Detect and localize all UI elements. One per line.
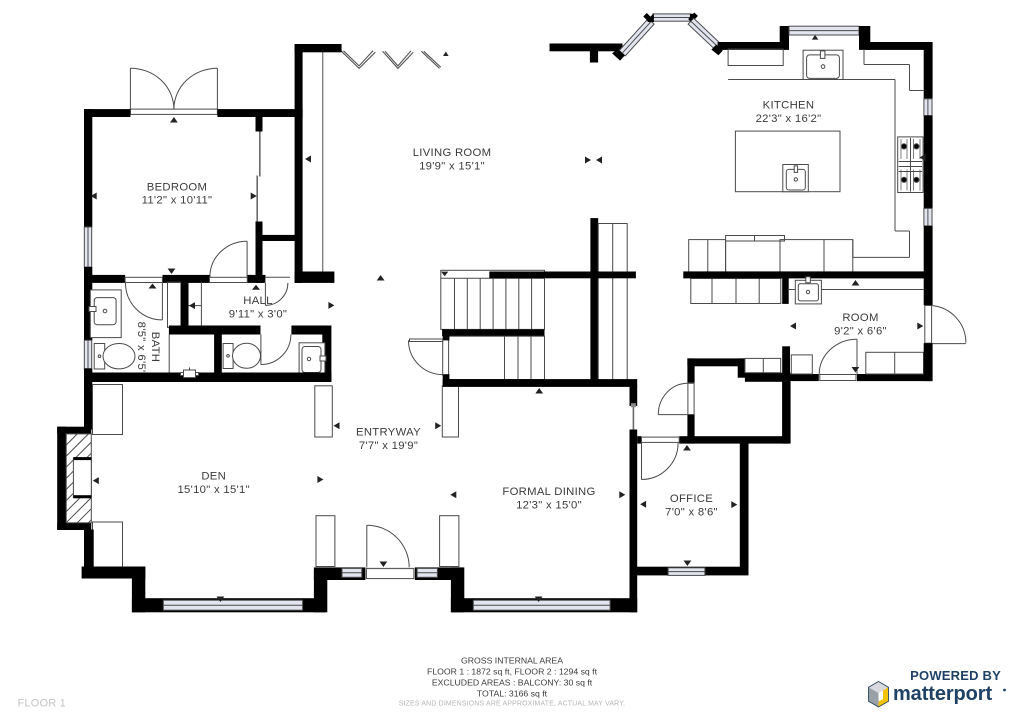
svg-text:9'11" x 3'0": 9'11" x 3'0" <box>229 309 287 321</box>
svg-text:7'0" x 8'6": 7'0" x 8'6" <box>665 506 718 518</box>
svg-text:19'9" x 15'1": 19'9" x 15'1" <box>419 160 485 172</box>
svg-text:OFFICE: OFFICE <box>670 493 713 505</box>
svg-text:SIZES AND DIMENSIONS ARE APPRO: SIZES AND DIMENSIONS ARE APPROXIMATE, AC… <box>399 701 626 708</box>
svg-text:15'10" x 15'1": 15'10" x 15'1" <box>177 484 249 496</box>
svg-text:7'7" x 19'9": 7'7" x 19'9" <box>359 440 418 452</box>
svg-text:TOTAL: 3166 sq ft: TOTAL: 3166 sq ft <box>477 688 548 698</box>
svg-text:22'3" x 16'2": 22'3" x 16'2" <box>756 113 822 125</box>
svg-text:DEN: DEN <box>201 471 226 483</box>
svg-text:ENTRYWAY: ENTRYWAY <box>356 427 421 439</box>
svg-text:KITCHEN: KITCHEN <box>763 100 815 112</box>
svg-text:FLOOR 1: FLOOR 1 <box>18 698 66 710</box>
svg-text:matterport: matterport <box>893 683 992 705</box>
svg-text:ROOM: ROOM <box>842 312 878 324</box>
svg-text:GROSS INTERNAL AREA: GROSS INTERNAL AREA <box>461 656 563 666</box>
svg-text:POWERED BY: POWERED BY <box>910 668 1001 683</box>
svg-text:EXCLUDED AREAS : BALCONY: 30 s: EXCLUDED AREAS : BALCONY: 30 sq ft <box>432 677 593 687</box>
svg-text:11'2" x 10'11": 11'2" x 10'11" <box>142 195 213 207</box>
svg-text:8'5" x 6'5": 8'5" x 6'5" <box>135 322 147 375</box>
svg-text:12'3" x 15'0": 12'3" x 15'0" <box>516 500 582 512</box>
svg-text:FLOOR 1 : 1872 sq ft, FLOOR 2: FLOOR 1 : 1872 sq ft, FLOOR 2 : 1294 sq … <box>427 667 598 677</box>
svg-text:BEDROOM: BEDROOM <box>147 181 207 193</box>
svg-text:BATH: BATH <box>149 332 161 363</box>
svg-text:HALL: HALL <box>243 295 272 307</box>
svg-text:9'2" x 6'6": 9'2" x 6'6" <box>834 325 887 337</box>
svg-text:FORMAL DINING: FORMAL DINING <box>502 486 595 498</box>
svg-text:LIVING ROOM: LIVING ROOM <box>413 147 492 159</box>
